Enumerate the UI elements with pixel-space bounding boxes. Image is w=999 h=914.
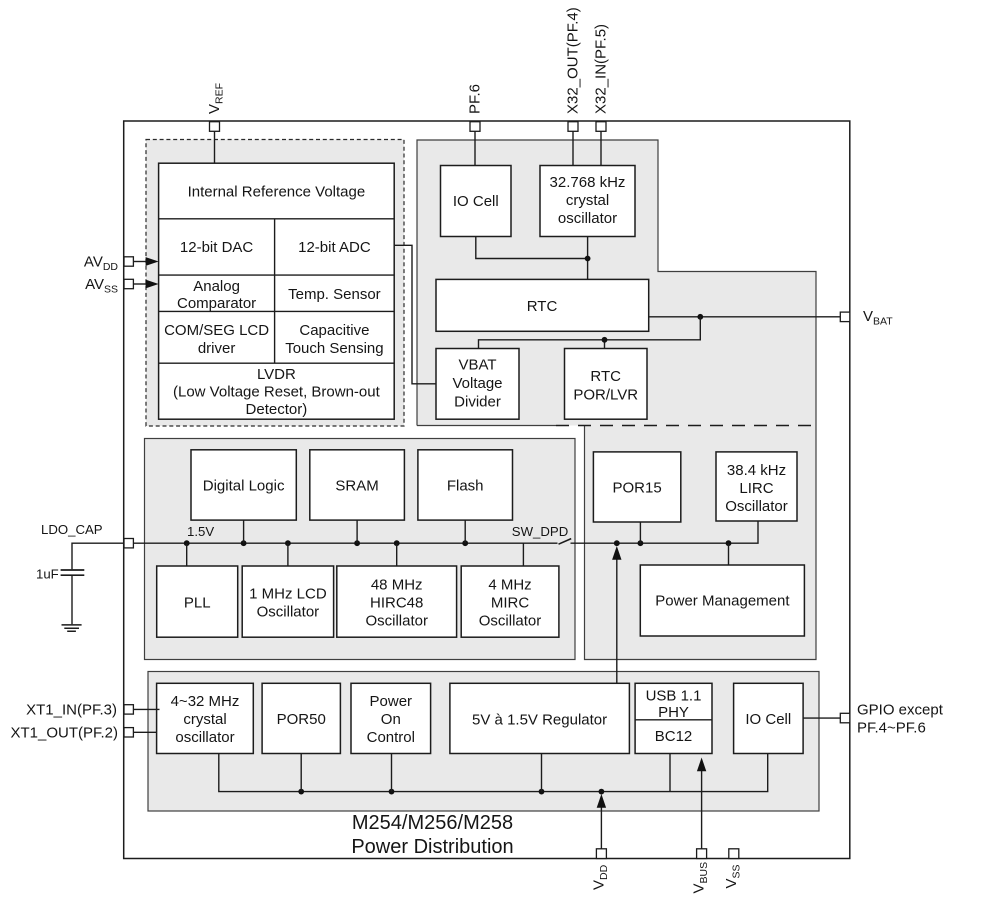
svg-text:Digital Logic: Digital Logic [203, 478, 285, 495]
svg-text:VBATVoltageDivider: VBATVoltageDivider [452, 357, 502, 411]
svg-text:SW_DPD: SW_DPD [512, 524, 568, 539]
svg-text:12-bit DAC: 12-bit DAC [180, 239, 254, 256]
svg-text:Internal Reference Voltage: Internal Reference Voltage [188, 184, 366, 201]
svg-text:SRAM: SRAM [335, 478, 378, 495]
svg-text:AVDD: AVDD [84, 254, 118, 274]
svg-text:XT1_OUT(PF.2): XT1_OUT(PF.2) [10, 725, 118, 742]
svg-text:POR50: POR50 [277, 711, 326, 728]
svg-text:VBUS: VBUS [691, 862, 711, 894]
svg-text:AVSS: AVSS [85, 276, 118, 296]
svg-text:1 MHz LCDOscillator: 1 MHz LCDOscillator [249, 586, 327, 621]
svg-text:CapacitiveTouch Sensing: CapacitiveTouch Sensing [285, 322, 383, 357]
svg-text:VSS: VSS [723, 864, 743, 888]
svg-text:1uF: 1uF [36, 567, 59, 582]
svg-text:PF.6: PF.6 [467, 84, 484, 114]
svg-text:VDD: VDD [591, 864, 611, 890]
svg-text:X32_IN(PF.5): X32_IN(PF.5) [593, 24, 610, 114]
svg-text:5V à 1.5V Regulator: 5V à 1.5V Regulator [472, 712, 607, 729]
svg-text:IO Cell: IO Cell [745, 711, 791, 728]
svg-text:48 MHzHIRC48Oscillator: 48 MHzHIRC48Oscillator [365, 577, 428, 630]
svg-text:X32_OUT(PF.4): X32_OUT(PF.4) [565, 7, 582, 114]
svg-text:RTC: RTC [527, 298, 558, 315]
svg-text:1.5V: 1.5V [187, 524, 214, 539]
svg-text:VBAT: VBAT [863, 308, 893, 328]
svg-text:POR15: POR15 [612, 480, 661, 497]
svg-text:GPIO exceptPF.4~PF.6: GPIO exceptPF.4~PF.6 [857, 702, 944, 737]
svg-text:LDO_CAP: LDO_CAP [41, 522, 103, 537]
svg-text:BC12: BC12 [655, 728, 693, 745]
svg-text:VREF: VREF [206, 83, 226, 114]
svg-text:IO Cell: IO Cell [453, 193, 499, 210]
svg-text:Temp. Sensor: Temp. Sensor [288, 286, 381, 303]
svg-text:Flash: Flash [447, 478, 484, 495]
svg-text:Power Management: Power Management [655, 593, 790, 610]
svg-text:Power Distribution: Power Distribution [351, 836, 513, 858]
svg-text:PLL: PLL [184, 595, 211, 612]
svg-text:M254/M256/M258: M254/M256/M258 [352, 812, 513, 834]
svg-text:12-bit ADC: 12-bit ADC [298, 239, 371, 256]
svg-text:XT1_IN(PF.3): XT1_IN(PF.3) [26, 701, 117, 718]
